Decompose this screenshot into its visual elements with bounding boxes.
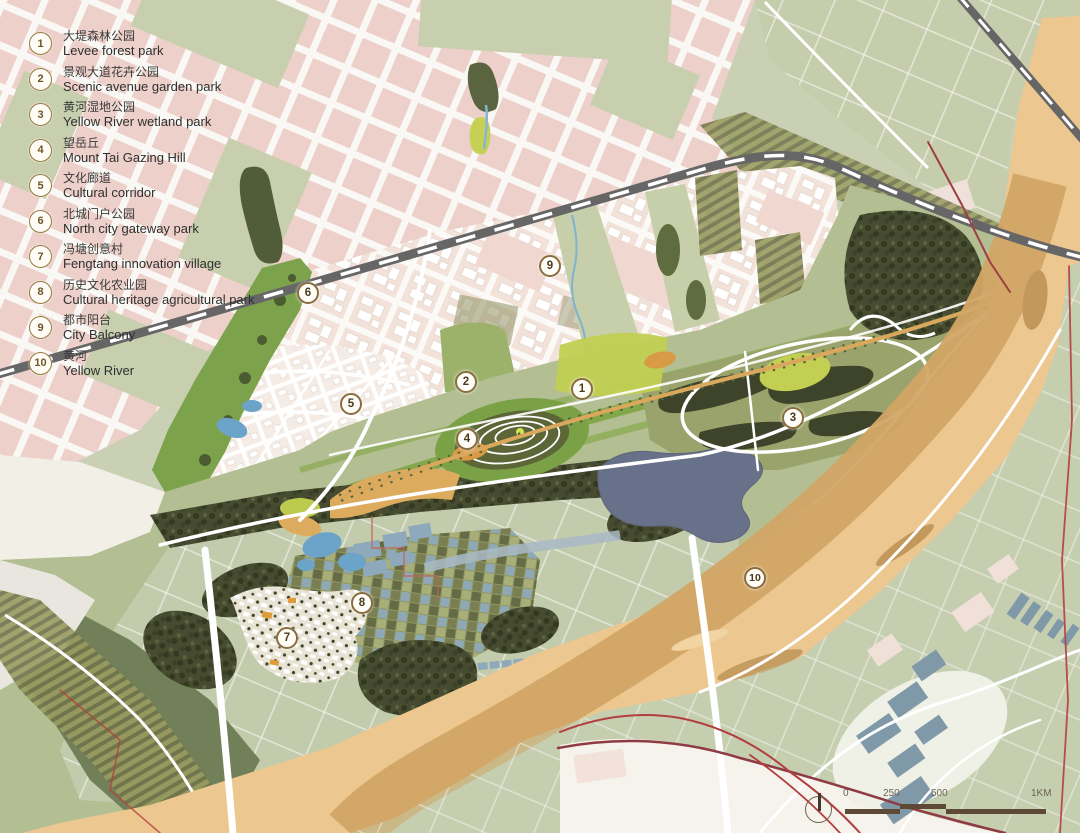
map-marker-1[interactable]: 1 bbox=[571, 378, 593, 400]
legend-number-badge: 8 bbox=[29, 281, 52, 304]
legend-label-en: Yellow River bbox=[63, 363, 134, 378]
scale-label-0: 0 bbox=[843, 788, 849, 799]
map-marker-10[interactable]: 10 bbox=[744, 567, 766, 589]
legend-label-en: Scenic avenue garden park bbox=[63, 79, 221, 94]
legend-label-zh: 历史文化农业园 bbox=[63, 278, 254, 292]
legend-label-en: City Balcony bbox=[63, 327, 135, 342]
legend-item: 2 景观大道花卉公园Scenic avenue garden park bbox=[29, 62, 254, 98]
legend-item: 1 大堤森林公园Levee forest park bbox=[29, 26, 254, 62]
legend-item: 7 冯塘创意村Fengtang innovation village bbox=[29, 239, 254, 275]
legend-label-en: Yellow River wetland park bbox=[63, 114, 211, 129]
legend-label-zh: 黄河湿地公园 bbox=[63, 100, 211, 114]
scale-bar: 0 250 500 1KM bbox=[793, 782, 1068, 828]
scale-label-250: 250 bbox=[883, 788, 900, 799]
legend-number-badge: 5 bbox=[29, 174, 52, 197]
legend-item: 6 北城门户公园North city gateway park bbox=[29, 204, 254, 240]
legend-number-badge: 10 bbox=[29, 352, 52, 375]
legend-item: 5 文化廊道Cultural corridor bbox=[29, 168, 254, 204]
map-marker-4[interactable]: 4 bbox=[456, 428, 478, 450]
map-marker-6[interactable]: 6 bbox=[297, 282, 319, 304]
legend-number-badge: 6 bbox=[29, 210, 52, 233]
legend-label-zh: 黄河 bbox=[63, 349, 134, 363]
legend-label-zh: 都市阳台 bbox=[63, 313, 135, 327]
legend-item: 3 黄河湿地公园Yellow River wetland park bbox=[29, 97, 254, 133]
scale-label-1km: 1KM bbox=[1031, 788, 1052, 799]
scale-segment bbox=[900, 804, 946, 809]
legend-label-en: North city gateway park bbox=[63, 221, 199, 236]
legend-label-en: Cultural heritage agricultural park bbox=[63, 292, 254, 307]
scale-segment bbox=[845, 809, 900, 814]
legend-number-badge: 1 bbox=[29, 32, 52, 55]
map-marker-8[interactable]: 8 bbox=[351, 592, 373, 614]
north-needle bbox=[818, 793, 821, 811]
legend-label-en: Cultural corridor bbox=[63, 185, 155, 200]
legend-label-zh: 冯塘创意村 bbox=[63, 242, 221, 256]
north-compass-icon bbox=[805, 796, 832, 823]
map-marker-2[interactable]: 2 bbox=[455, 371, 477, 393]
legend-number-badge: 4 bbox=[29, 139, 52, 162]
legend-label-en: Levee forest park bbox=[63, 43, 163, 58]
legend-item: 9 都市阳台City Balcony bbox=[29, 310, 254, 346]
legend-item: 8 历史文化农业园Cultural heritage agricultural … bbox=[29, 275, 254, 311]
legend-number-badge: 3 bbox=[29, 103, 52, 126]
legend-label-zh: 北城门户公园 bbox=[63, 207, 199, 221]
legend-label-en: Mount Tai Gazing Hill bbox=[63, 150, 186, 165]
map-marker-5[interactable]: 5 bbox=[340, 393, 362, 415]
legend: 1 大堤森林公园Levee forest park 2 景观大道花卉公园Scen… bbox=[29, 26, 254, 381]
legend-label-zh: 景观大道花卉公园 bbox=[63, 65, 221, 79]
map-marker-9[interactable]: 9 bbox=[539, 255, 561, 277]
legend-label-en: Fengtang innovation village bbox=[63, 256, 221, 271]
legend-item: 10 黄河Yellow River bbox=[29, 346, 254, 382]
map-marker-3[interactable]: 3 bbox=[782, 407, 804, 429]
master-plan-map: 1 大堤森林公园Levee forest park 2 景观大道花卉公园Scen… bbox=[0, 0, 1080, 833]
map-marker-7[interactable]: 7 bbox=[276, 627, 298, 649]
legend-number-badge: 9 bbox=[29, 316, 52, 339]
legend-label-zh: 文化廊道 bbox=[63, 171, 155, 185]
legend-label-zh: 大堤森林公园 bbox=[63, 29, 163, 43]
legend-number-badge: 2 bbox=[29, 68, 52, 91]
scale-label-500: 500 bbox=[931, 788, 948, 799]
legend-number-badge: 7 bbox=[29, 245, 52, 268]
legend-label-zh: 望岳丘 bbox=[63, 136, 186, 150]
scale-segment bbox=[946, 809, 1046, 814]
legend-item: 4 望岳丘Mount Tai Gazing Hill bbox=[29, 133, 254, 169]
